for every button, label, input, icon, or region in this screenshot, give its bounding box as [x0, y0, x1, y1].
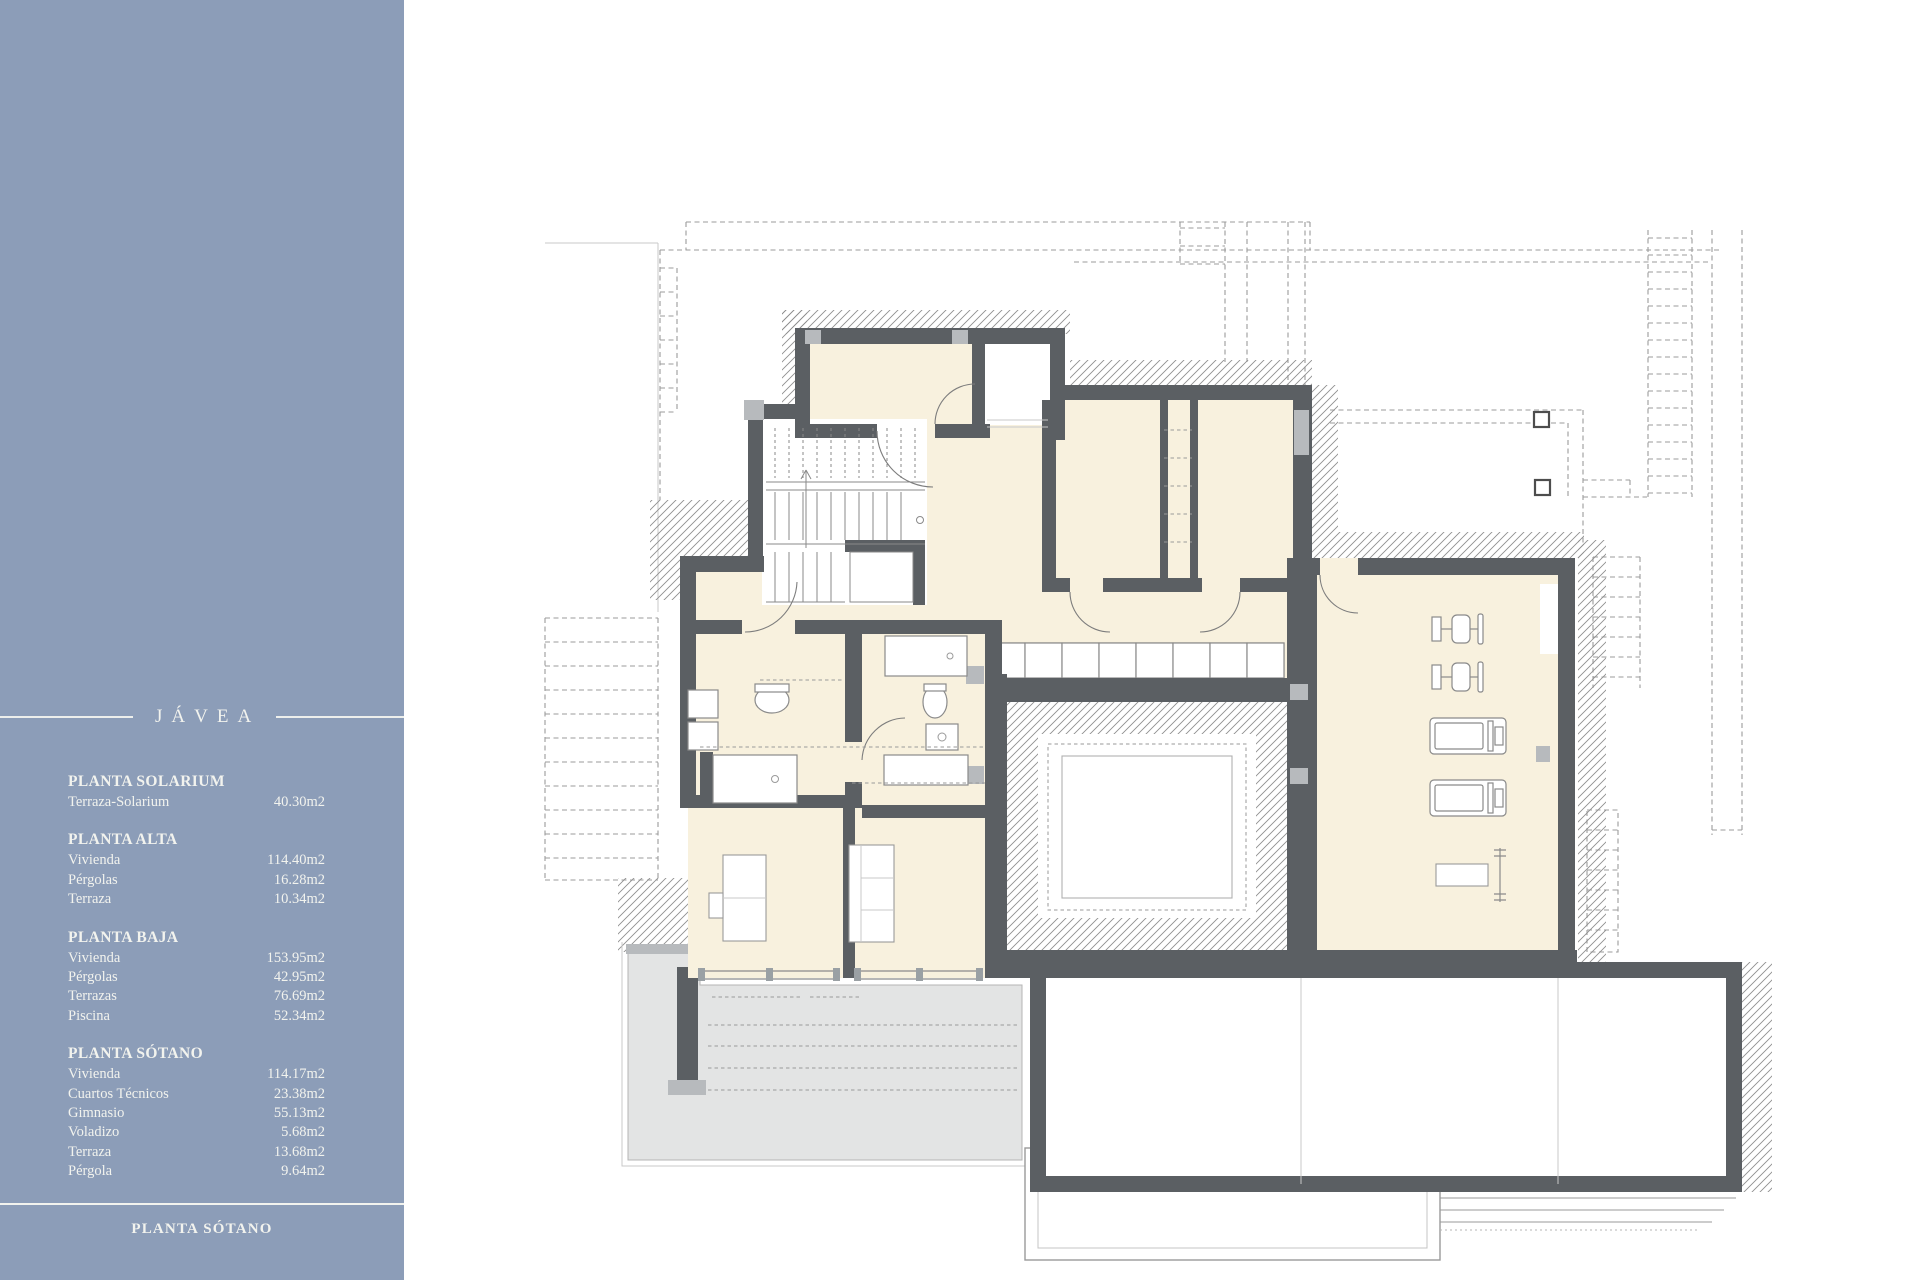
area-value: 114.17m2 — [267, 1065, 325, 1084]
section-title: PLANTA SÓTANO — [68, 1044, 325, 1064]
area-row: Terraza-Solarium 40.30m2 — [68, 793, 325, 812]
area-label: Pérgolas — [68, 968, 118, 987]
area-value: 10.34m2 — [274, 890, 325, 909]
area-row: Terraza 10.34m2 — [68, 890, 325, 909]
area-row: Vivienda 153.95m2 — [68, 949, 325, 968]
plan-sheet: JÁVEA PLANTA SOLARIUM Terraza-Solarium 4… — [0, 0, 1920, 1280]
brand-header: JÁVEA — [0, 706, 404, 728]
area-label: Pérgola — [68, 1162, 112, 1181]
area-value: 23.38m2 — [274, 1085, 325, 1104]
treadmill-icon — [1430, 780, 1506, 816]
area-label: Vivienda — [68, 949, 120, 968]
section-title: PLANTA ALTA — [68, 830, 325, 850]
area-label: Pérgolas — [68, 871, 118, 890]
area-label: Terraza — [68, 1143, 111, 1162]
area-label: Terraza-Solarium — [68, 793, 169, 812]
area-label: Cuartos Técnicos — [68, 1085, 169, 1104]
area-label: Piscina — [68, 1007, 110, 1026]
area-row: Vivienda 114.40m2 — [68, 851, 325, 870]
area-row: Terraza 13.68m2 — [68, 1143, 325, 1162]
lower-terrace — [1038, 970, 1734, 1184]
area-value: 153.95m2 — [267, 949, 325, 968]
area-table: PLANTA SOLARIUM Terraza-Solarium 40.30m2… — [68, 772, 325, 1200]
sofa-icon — [849, 845, 894, 942]
area-section: PLANTA ALTA Vivienda 114.40m2 Pérgolas 1… — [68, 830, 325, 909]
area-value: 40.30m2 — [274, 793, 325, 812]
area-value: 114.40m2 — [267, 851, 325, 870]
area-row: Gimnasio 55.13m2 — [68, 1104, 325, 1123]
area-value: 52.34m2 — [274, 1007, 325, 1026]
area-label: Terrazas — [68, 987, 117, 1006]
area-value: 16.28m2 — [274, 871, 325, 890]
area-row: Piscina 52.34m2 — [68, 1007, 325, 1026]
gym-wall-niche — [1540, 584, 1558, 654]
area-row: Voladizo 5.68m2 — [68, 1123, 325, 1142]
brand-title: JÁVEA — [133, 706, 276, 728]
area-section: PLANTA SOLARIUM Terraza-Solarium 40.30m2 — [68, 772, 325, 812]
treadmill-icon — [1430, 718, 1506, 754]
area-row: Pérgolas 42.95m2 — [68, 968, 325, 987]
area-value: 76.69m2 — [274, 987, 325, 1006]
floor-plan-drawing — [404, 0, 1920, 1280]
section-title: PLANTA BAJA — [68, 928, 325, 948]
area-value: 55.13m2 — [274, 1104, 325, 1123]
area-row: Terrazas 76.69m2 — [68, 987, 325, 1006]
glazing-band — [988, 643, 1284, 678]
sidebar: JÁVEA PLANTA SOLARIUM Terraza-Solarium 4… — [0, 0, 404, 1280]
area-label: Voladizo — [68, 1123, 119, 1142]
area-label: Terraza — [68, 890, 111, 909]
area-row: Pérgolas 16.28m2 — [68, 871, 325, 890]
pergola-column-icon — [1534, 412, 1550, 495]
area-row: Vivienda 114.17m2 — [68, 1065, 325, 1084]
area-value: 13.68m2 — [274, 1143, 325, 1162]
floor-label: PLANTA SÓTANO — [0, 1221, 404, 1238]
brand-rule-right — [276, 716, 404, 718]
area-value: 42.95m2 — [274, 968, 325, 987]
area-label: Vivienda — [68, 1065, 120, 1084]
brand-rule-left — [0, 716, 133, 718]
area-row: Pérgola 9.64m2 — [68, 1162, 325, 1181]
section-title: PLANTA SOLARIUM — [68, 772, 325, 792]
footer-rule — [0, 1203, 404, 1205]
area-label: Gimnasio — [68, 1104, 124, 1123]
area-label: Vivienda — [68, 851, 120, 870]
area-section: PLANTA BAJA Vivienda 153.95m2 Pérgolas 4… — [68, 928, 325, 1027]
area-section: PLANTA SÓTANO Vivienda 114.17m2 Cuartos … — [68, 1044, 325, 1181]
area-value: 9.64m2 — [281, 1162, 325, 1181]
area-value: 5.68m2 — [281, 1123, 325, 1142]
area-row: Cuartos Técnicos 23.38m2 — [68, 1085, 325, 1104]
